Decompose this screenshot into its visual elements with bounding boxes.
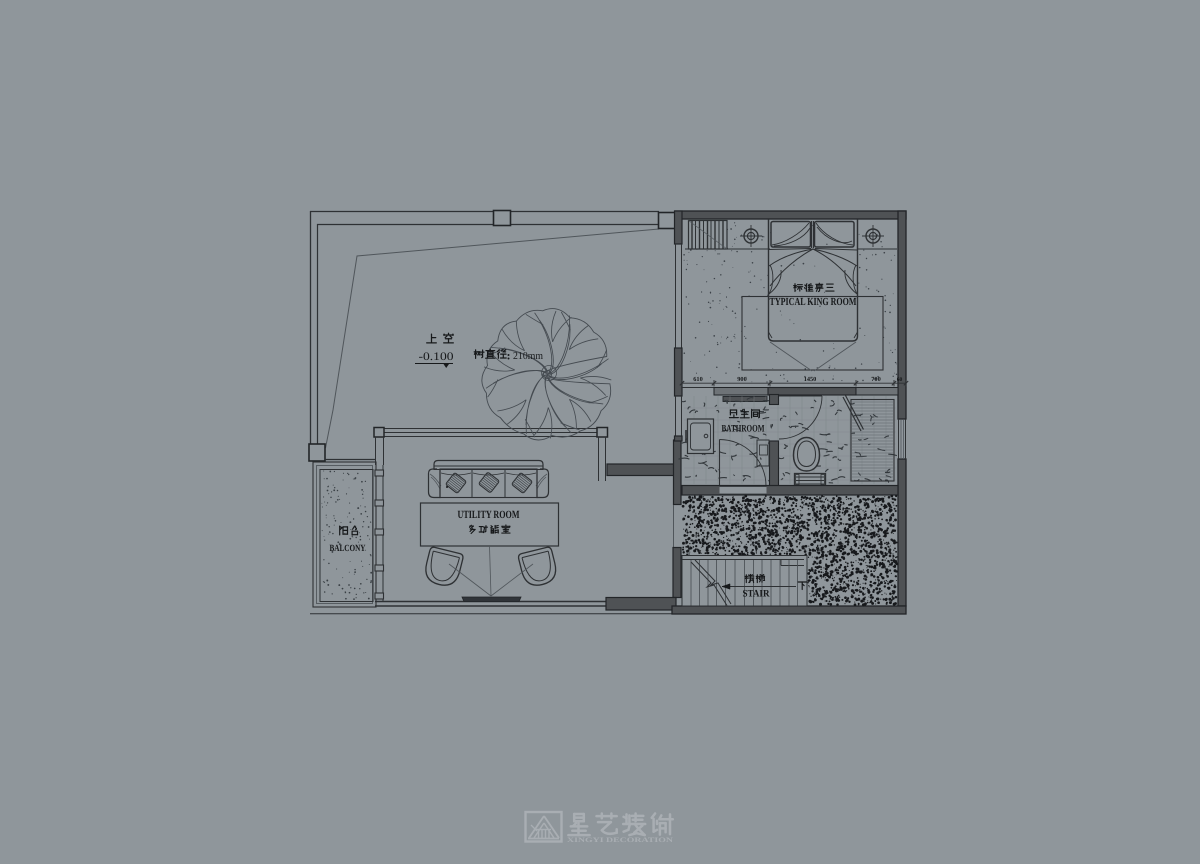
svg-text:TYPICAL KING ROOM: TYPICAL KING ROOM bbox=[770, 296, 857, 308]
svg-text:210mm: 210mm bbox=[513, 351, 543, 362]
svg-text:610: 610 bbox=[693, 376, 702, 383]
svg-text:UTILITY ROOM: UTILITY ROOM bbox=[458, 509, 520, 521]
svg-text:STAIR: STAIR bbox=[743, 589, 771, 600]
svg-text:700: 700 bbox=[871, 376, 880, 383]
svg-text:XINGYI DECORATION: XINGYI DECORATION bbox=[567, 837, 673, 844]
svg-text:BALCONY: BALCONY bbox=[330, 544, 366, 554]
svg-text:60: 60 bbox=[897, 377, 903, 383]
svg-text:BATHROOM: BATHROOM bbox=[722, 424, 765, 435]
svg-text:-0.100: -0.100 bbox=[419, 351, 454, 363]
svg-text:900: 900 bbox=[737, 376, 746, 383]
svg-text:1450: 1450 bbox=[804, 376, 817, 383]
